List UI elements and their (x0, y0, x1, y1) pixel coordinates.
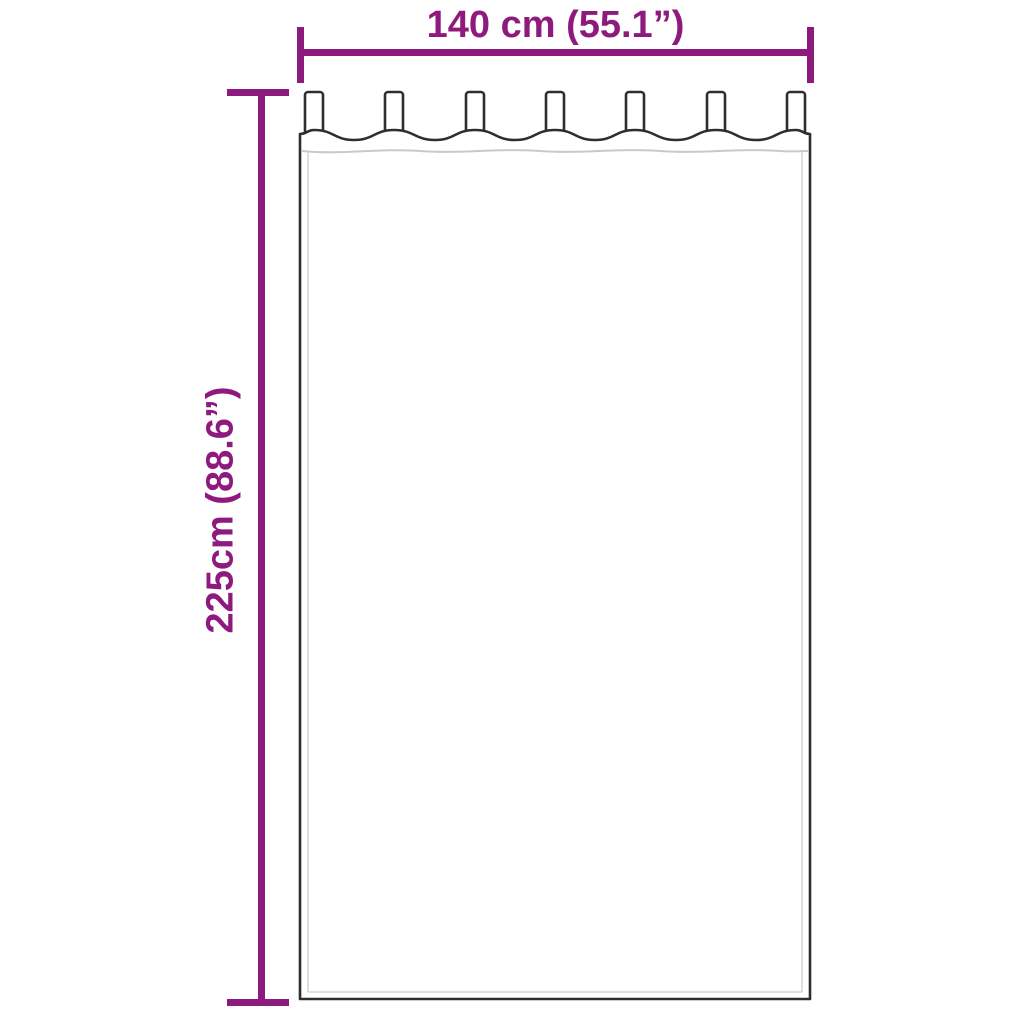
curtain-body (300, 130, 810, 999)
dimension-diagram: 140 cm (55.1”) 225cm (88.6”) (0, 0, 1024, 1024)
curtain-illustration (0, 0, 1024, 1024)
